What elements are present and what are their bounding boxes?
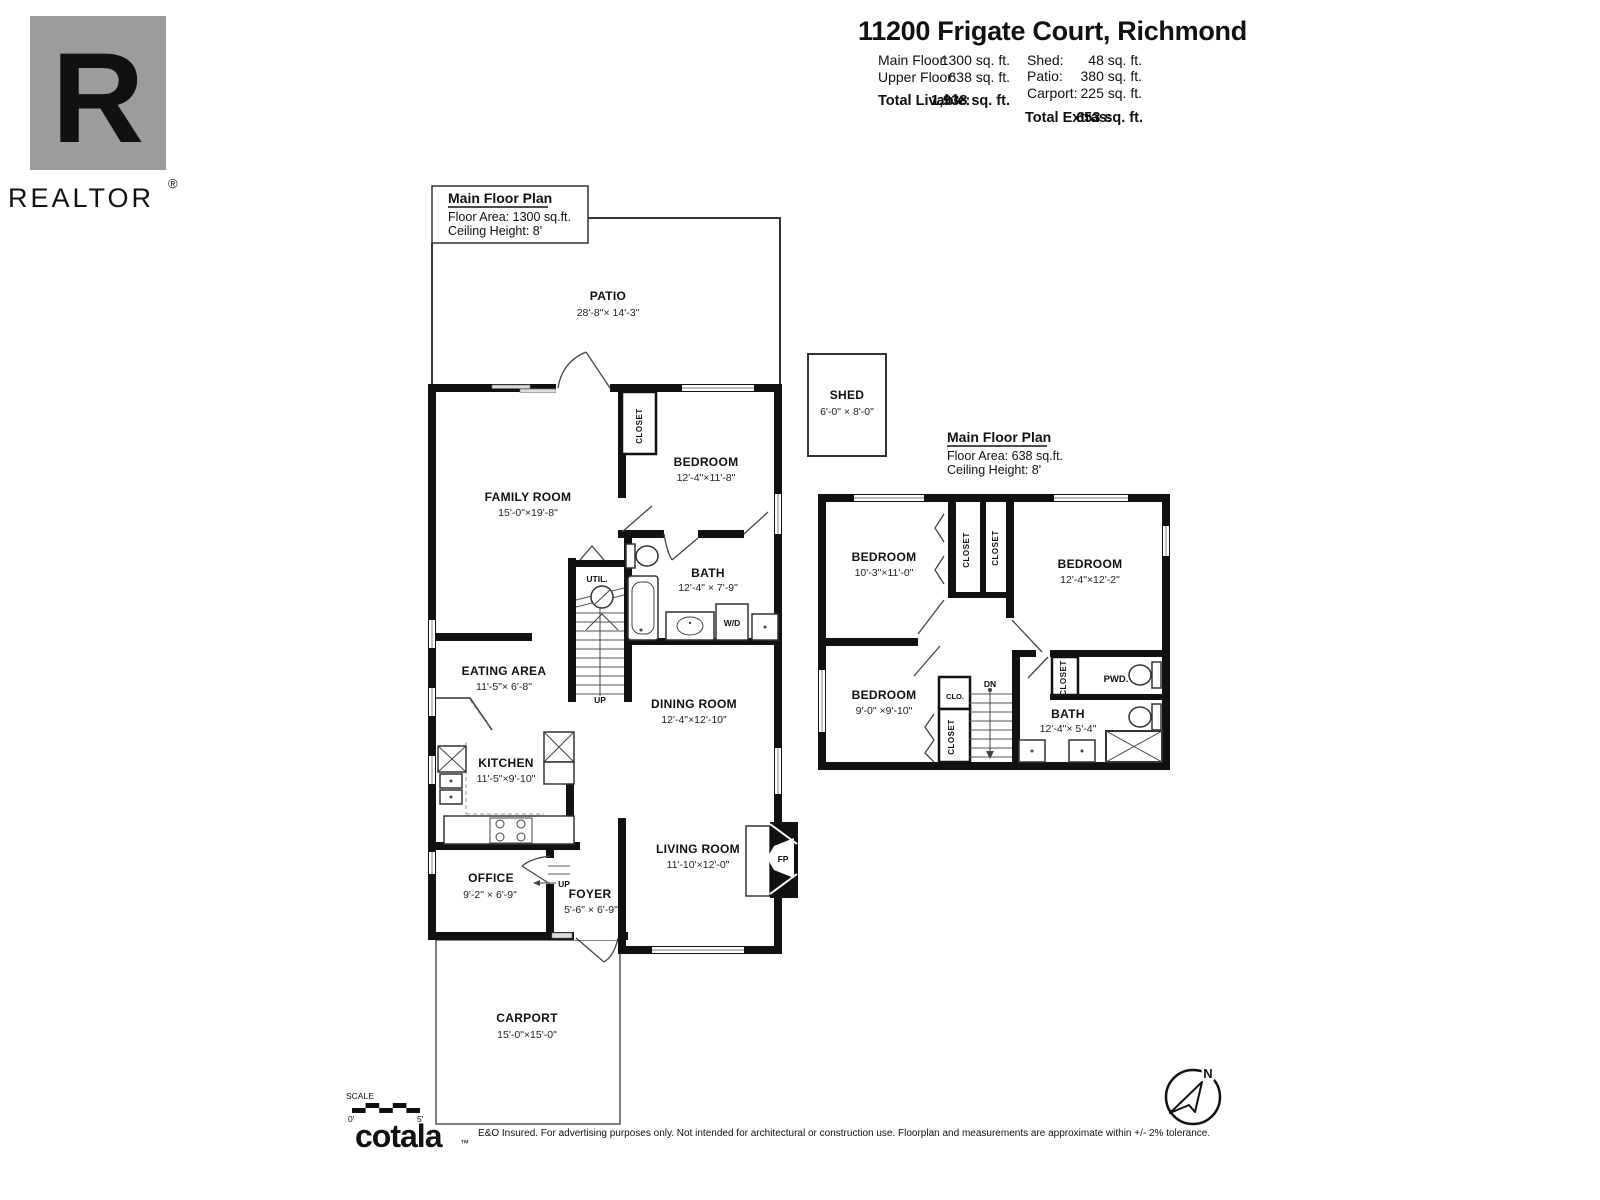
room-dims: 12'-4"×11'-8" <box>677 472 736 484</box>
realtor-r-icon: R <box>52 27 144 170</box>
room-dims: 11'-5"×9'-10" <box>477 773 536 785</box>
upper-plan-title: Main Floor Plan Floor Area: 638 sq.ft. C… <box>947 429 1063 477</box>
trademark-mark: ™ <box>460 1138 469 1148</box>
room-label: BEDROOM <box>852 688 917 702</box>
disclaimer-text: E&O Insured. For advertising purposes on… <box>478 1128 1210 1139</box>
total-livable-value: 1,938 sq. ft. <box>931 93 1010 109</box>
realtor-wordmark: REALTOR <box>8 183 154 213</box>
closet-label: CLOSET <box>947 719 956 754</box>
room-label: LIVING ROOM <box>656 842 740 856</box>
room-label: FOYER <box>569 887 612 901</box>
total-extras-value: 653 sq. ft. <box>1076 110 1143 126</box>
room-label: PATIO <box>590 289 626 303</box>
scale-start: 0' <box>348 1114 355 1124</box>
plan-ceiling-height: Ceiling Height: 8' <box>947 463 1041 477</box>
registered-mark: ® <box>168 176 178 191</box>
room-dims: 12'-4"×12'-2" <box>1060 574 1120 586</box>
plan-title: Main Floor Plan <box>947 429 1051 445</box>
room-label: DINING ROOM <box>651 697 737 711</box>
stairs-dn-label: DN <box>984 679 996 689</box>
room-label: UTIL. <box>586 574 607 584</box>
room-dims: 12'-4"×12'-10" <box>661 714 727 726</box>
clo-label: CLO. <box>946 692 964 701</box>
stat-value: 225 sq. ft. <box>1081 85 1142 101</box>
toilet-icon <box>1152 662 1161 688</box>
room-dims: 11'-10'×12'-0" <box>667 859 730 871</box>
vanity-sink-icon <box>666 612 714 640</box>
stat-value: 380 sq. ft. <box>1081 68 1142 84</box>
room-dims: 5'-6" × 6'-9" <box>564 904 618 916</box>
stat-value: 1300 sq. ft. <box>941 52 1010 68</box>
room-label: BATH <box>691 566 725 580</box>
room-label: EATING AREA <box>462 664 547 678</box>
cotala-logo: cotala <box>355 1118 443 1154</box>
shed: SHED 6'-0" × 8'-0" <box>808 354 886 456</box>
room-label: FAMILY ROOM <box>485 490 572 504</box>
toilet-icon <box>1152 704 1161 730</box>
room-label: BEDROOM <box>674 455 739 469</box>
stat-value: 48 sq. ft. <box>1088 52 1142 68</box>
stat-label: Upper Floor: <box>878 69 956 85</box>
plan-floor-area: Floor Area: 638 sq.ft. <box>947 449 1063 463</box>
room-dims: 10'-3"×11'-0" <box>855 567 914 579</box>
scale-label: SCALE <box>346 1091 374 1101</box>
compass-north-label: N <box>1203 1066 1212 1081</box>
room-dims: 9'-0" ×9'-10" <box>856 705 913 717</box>
room-label: BEDROOM <box>852 550 917 564</box>
header: 11200 Frigate Court, Richmond Main Floor… <box>858 16 1247 126</box>
stairs-up-label: UP <box>594 695 606 705</box>
room-label: BATH <box>1051 707 1085 721</box>
closet-label: CLOSET <box>1059 660 1068 695</box>
room-dims: 28'-8"× 14'-3" <box>577 307 640 319</box>
kitchen-counters <box>436 698 574 844</box>
wd-label: W/D <box>724 618 741 628</box>
stat-label: Main Floor: <box>878 52 948 68</box>
island-counter <box>444 816 574 844</box>
room-dims: 6'-0" × 8'-0" <box>820 406 874 418</box>
carport: CARPORT 15'-0"×15'-0" <box>436 940 620 1124</box>
room-label: PWD. <box>1104 674 1129 685</box>
closet-label: CLOSET <box>991 530 1000 565</box>
compass: N <box>1166 1066 1220 1124</box>
floorplan-page: R REALTOR ® 11200 Frigate Court, Richmon… <box>0 0 1600 1200</box>
fireplace: FP <box>746 822 798 898</box>
stat-label: Shed: <box>1027 52 1064 68</box>
room-label: KITCHEN <box>478 756 533 770</box>
room-dims: 9'-2" × 6'-9" <box>463 889 517 901</box>
room-label: OFFICE <box>468 871 514 885</box>
stat-value: 638 sq. ft. <box>949 69 1010 85</box>
upper-bath-fixtures <box>1019 662 1162 762</box>
closet-label: CLOSET <box>635 408 644 443</box>
stat-label: Carport: <box>1027 85 1078 101</box>
toilet-icon <box>1129 707 1151 727</box>
toilet-icon <box>626 544 635 568</box>
plan-ceiling-height: Ceiling Height: 8' <box>448 224 542 238</box>
toilet-icon <box>1129 665 1151 685</box>
floorplan-canvas: R REALTOR ® 11200 Frigate Court, Richmon… <box>0 0 1600 1200</box>
plan-floor-area: Floor Area: 1300 sq.ft. <box>448 210 571 224</box>
room-dims: 11'-5"× 6'-8" <box>476 681 532 693</box>
room-dims: 15'-0"×19'-8" <box>498 507 558 519</box>
upper-stairs: DN <box>969 679 1012 759</box>
room-dims: 12'-4" × 7'-9" <box>678 582 738 594</box>
page-title: 11200 Frigate Court, Richmond <box>858 16 1247 46</box>
room-dims: 12'-4"× 5'-4" <box>1040 723 1097 735</box>
room-label: CARPORT <box>496 1011 558 1025</box>
room-label: BEDROOM <box>1058 557 1123 571</box>
shed-outline <box>808 354 886 456</box>
north-arrow-icon <box>1170 1082 1202 1113</box>
stat-label: Patio: <box>1027 68 1063 84</box>
toilet-icon <box>636 546 658 566</box>
main-plan-title: Main Floor Plan Floor Area: 1300 sq.ft. … <box>432 186 588 243</box>
room-label: SHED <box>830 388 865 402</box>
fireplace-label: FP <box>778 854 789 864</box>
plan-title: Main Floor Plan <box>448 190 552 206</box>
room-dims: 15'-0"×15'-0" <box>497 1029 557 1041</box>
main-bedroom-closet: CLOSET <box>622 392 656 454</box>
realtor-logo: R REALTOR ® <box>8 16 178 213</box>
closet-label: CLOSET <box>962 532 971 567</box>
